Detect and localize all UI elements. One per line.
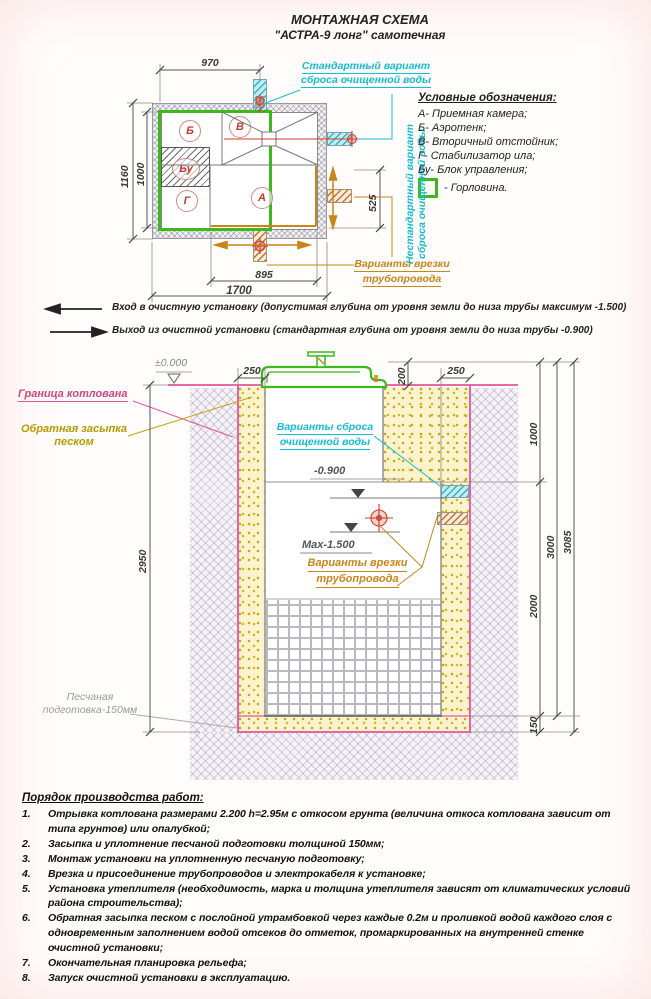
section-sand-backfill-left xyxy=(238,387,265,717)
section-max-1500: Max-1.500 xyxy=(302,539,355,551)
work-order-item: 2. Засыпка и уплотнение песчаной подгото… xyxy=(22,837,634,852)
plan-dim-895: 895 xyxy=(246,269,282,281)
plan-label-secondary-settler: В xyxy=(229,116,251,138)
work-order-item: 7. Окончательная планировка рельефа; xyxy=(22,956,634,971)
section-sand-backfill-right-top xyxy=(383,387,470,483)
plan-right-discharge-pipe xyxy=(327,132,352,146)
work-order-heading: Порядок производства работ: xyxy=(22,792,634,804)
work-order-item: 6. Обратная засыпка песком с послойной у… xyxy=(22,911,634,956)
section-soil-left xyxy=(190,388,238,732)
plan-label-aerotank: Б xyxy=(179,120,201,142)
plan-dim-1000: 1000 xyxy=(135,163,147,186)
work-order-list: Порядок производства работ: 1. Отрывка к… xyxy=(22,792,634,986)
section-dim-1000: 1000 xyxy=(528,423,540,446)
page-subtitle: "АСТРА-9 лонг" самотечная xyxy=(230,28,490,42)
standard-discharge-label: Стандартный вариантсброса очищенной воды xyxy=(296,60,436,88)
section-dim-3085: 3085 xyxy=(562,531,574,554)
plan-label-control-unit: Бу xyxy=(172,158,200,180)
section-dim-2000: 2000 xyxy=(528,595,540,618)
work-order-item: 4. Врезка и присоединение трубопроводов … xyxy=(22,867,634,882)
sand-backfill-label: Обратная засыпкапеском xyxy=(18,423,130,449)
section-outlet-pipe xyxy=(441,485,469,498)
section-dim-2950: 2950 xyxy=(137,550,149,573)
legend-item-sludge-stabilizer: Г- Стабилизатор ила; xyxy=(418,150,535,162)
vent-cap-icon xyxy=(308,352,334,356)
section-alt-outlet-pipe xyxy=(437,512,468,525)
page-title: МОНТАЖНАЯ СХЕМА xyxy=(230,12,490,27)
outlet-note: Выход из очистной установки (стандартная… xyxy=(112,325,647,336)
plan-label-sludge-stabilizer: Г xyxy=(176,190,198,212)
plan-right-alt-pipe xyxy=(327,189,352,203)
work-order-item: 1. Отрывка котлована размерами 2.200 h=2… xyxy=(22,807,634,837)
outlet-arrow-icon xyxy=(50,328,106,337)
section-dim-200: 200 xyxy=(396,367,408,385)
vent-stem-icon xyxy=(317,356,325,367)
section-level-900: -0.900 xyxy=(314,465,345,477)
plan-pipe-tap-label: Варианты врезкитрубопровода xyxy=(352,257,452,287)
section-soil-right xyxy=(470,388,518,732)
legend-item-secondary-settler: В- Вторичный отстойник; xyxy=(418,136,558,148)
section-tank-ribbed-zone xyxy=(266,600,441,716)
plan-dim-1160: 1160 xyxy=(119,165,131,188)
plan-top-pipe-tap-mark xyxy=(255,96,265,112)
pit-boundary-label: Граница котлована xyxy=(18,388,128,402)
section-dim-3000: 3000 xyxy=(545,536,557,559)
plan-dim-525: 525 xyxy=(367,194,379,212)
legend-item-aerotank: Б- Аэротенк; xyxy=(418,122,486,134)
plan-bottom-inlet-pipe xyxy=(253,230,267,262)
legend-heading: Условные обозначения: xyxy=(418,92,557,104)
plan-label-receiving-chamber: А xyxy=(251,187,273,209)
section-level-zero: ±0.000 xyxy=(155,357,187,369)
section-soil-bottom xyxy=(190,732,518,780)
section-dim-250-right: 250 xyxy=(441,365,471,377)
work-order-item: 3. Монтаж установки на уплотненную песча… xyxy=(22,852,634,867)
section-lid xyxy=(262,352,386,387)
section-discharge-options-label: Варианты сбросаочищенной воды xyxy=(272,420,378,450)
plan-dim-970: 970 xyxy=(192,57,228,69)
work-order-item: 5. Установка утеплителя (необходимость, … xyxy=(22,882,634,912)
legend-item-neck: - Горловина. xyxy=(444,182,508,194)
section-dim-250-left: 250 xyxy=(237,365,267,377)
plan-dim-1700: 1700 xyxy=(217,285,261,297)
inlet-note: Вход в очистную установку (допустимая гл… xyxy=(112,302,647,313)
section-dim-150: 150 xyxy=(528,716,540,734)
montage-scheme-page: МОНТАЖНАЯ СХЕМА "АСТРА-9 лонг" самотечна… xyxy=(0,0,651,999)
section-pipe-tap-label: Варианты врезкитрубопровода xyxy=(300,556,415,588)
legend-item-control-unit: Бу- Блок управления; xyxy=(418,164,527,176)
section-sand-preparation xyxy=(238,717,470,732)
inlet-arrow-icon xyxy=(46,305,102,314)
work-order-item: 8. Запуск очистной установки в эксплуата… xyxy=(22,971,634,986)
sand-preparation-label: Песчанаяподготовка-150мм xyxy=(40,691,140,717)
legend-item-receiving-chamber: А- Приемная камера; xyxy=(418,108,527,120)
